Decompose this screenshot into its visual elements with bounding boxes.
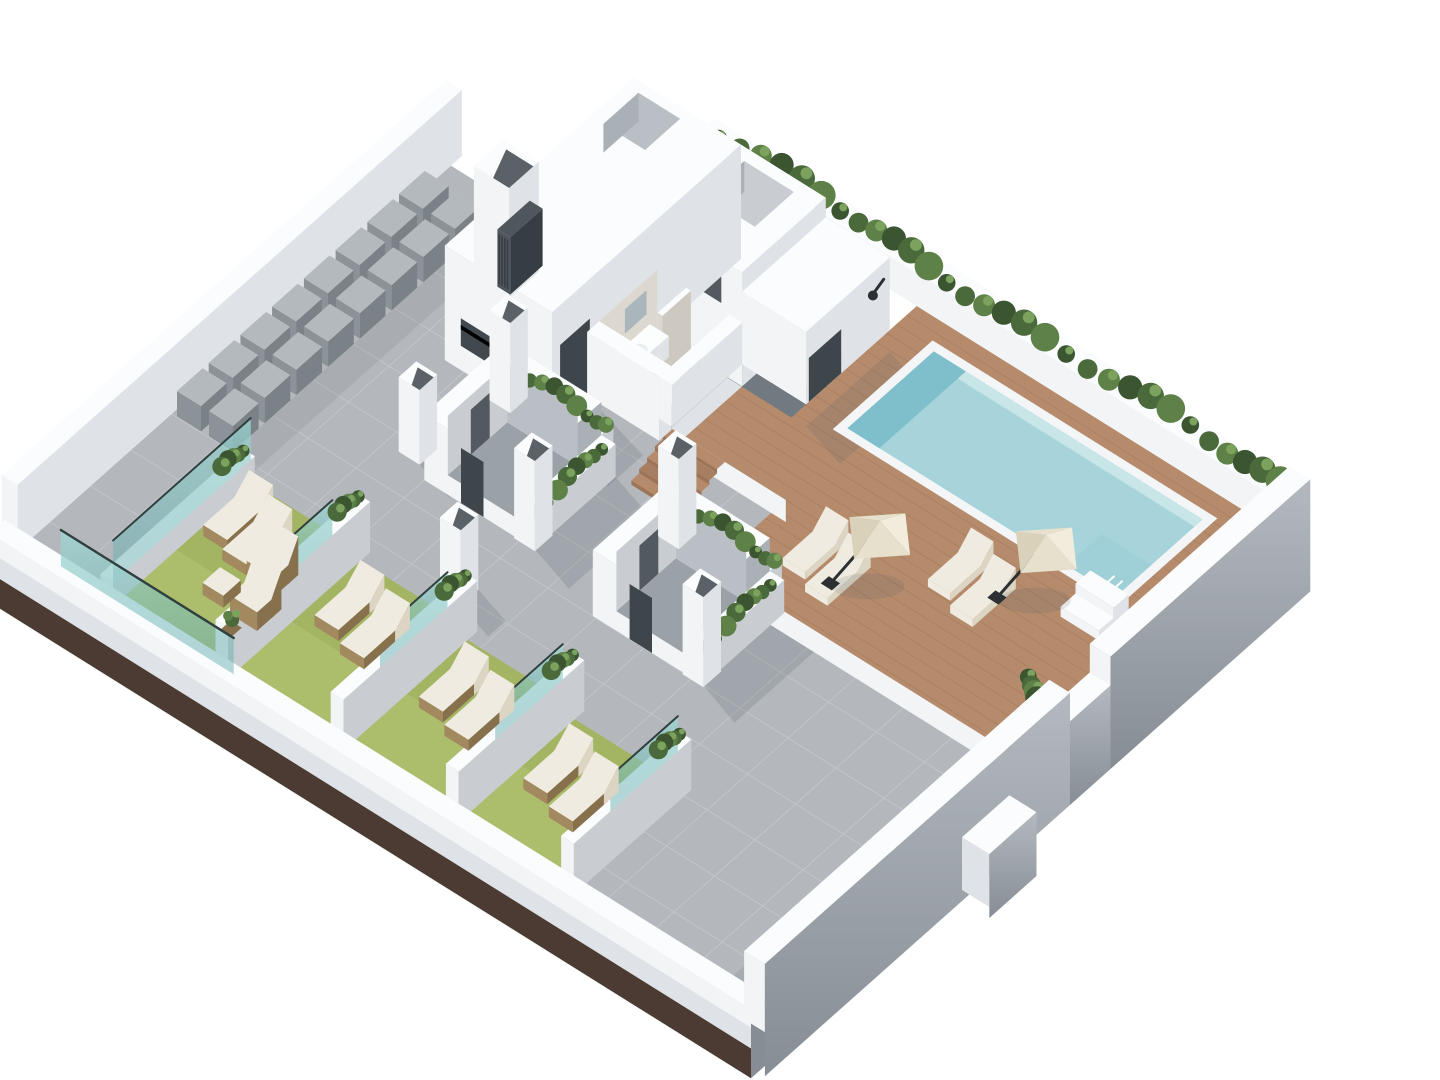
skylight-court-2-hedge-ne-foliage-light	[755, 547, 761, 553]
perimeter-hedge-foliage-light	[801, 167, 813, 179]
perimeter-hedge-foliage	[1057, 345, 1075, 363]
perimeter-hedge-foliage	[1157, 394, 1186, 423]
perimeter-hedge-foliage-light	[1149, 385, 1161, 397]
skylight-court-2-hedge-ne-foliage	[767, 553, 783, 569]
skylight-court-1-hedge-se-foliage-light	[585, 454, 592, 461]
lawn-wall-0-hedge-foliage-light	[221, 458, 230, 467]
skylight-court-2-hedge-se-foliage-light	[753, 590, 760, 597]
skylight-court-1-pillar-b-se-face	[535, 445, 553, 551]
skylight-court-1-hedge-ne-foliage-light	[605, 418, 612, 425]
perimeter-hedge-foliage	[915, 252, 944, 281]
lawn-wall-3-hedge-foliage	[542, 661, 561, 680]
skylight-court-2-pillar-b-se-face	[703, 581, 721, 687]
lawn-wall-0-hedge-foliage	[212, 457, 231, 476]
skylight-court-2-pillar-a-se-face	[679, 443, 697, 549]
skylight-court-1-pillar-b-sw-face	[514, 448, 535, 551]
lawn-wall-4-hedge-foliage-light	[657, 742, 666, 751]
skylight-court-2-hedge-se-foliage-light	[770, 580, 776, 586]
skylight-court-1-hedge-se-foliage-light	[601, 444, 607, 450]
parasol-1-shadow	[999, 588, 1071, 614]
perimeter-hedge-foliage-light	[1065, 347, 1073, 355]
parapet-east-2-sw-face	[744, 951, 765, 1032]
perimeter-hedge-foliage	[1098, 369, 1120, 391]
skylight-court-1-hedge-ne-foliage	[598, 417, 614, 433]
skylight-court-2-pillar-a-sw-face	[658, 446, 679, 549]
skylight-court-1-pillar-a-sw-face	[490, 310, 511, 413]
terrace-pillar-1-se-face	[420, 374, 438, 464]
perimeter-hedge-foliage-light	[910, 239, 922, 251]
skylight-court-2-hedge-ne-foliage-light	[774, 554, 781, 561]
perimeter-hedge-foliage	[1182, 416, 1200, 434]
perimeter-hedge-foliage-light	[1023, 312, 1035, 324]
perimeter-hedge-foliage-light	[983, 296, 993, 306]
skylight-court-1-pillar-a-se-face	[510, 307, 528, 413]
perimeter-hedge-foliage-light	[875, 221, 885, 231]
skylight-court-2-pillar-b-sw-face	[683, 584, 704, 687]
parasol-2-shadow	[832, 573, 904, 599]
perimeter-hedge-foliage	[1199, 431, 1219, 451]
lawn-wall-3-hedge-foliage-light	[550, 662, 559, 671]
perimeter-hedge-foliage-light	[839, 203, 847, 211]
perimeter-hedge-foliage-light	[1189, 418, 1197, 426]
plant-foliage	[223, 611, 233, 621]
perimeter-hedge-foliage-light	[760, 146, 770, 156]
lawn-wall-1-hedge-foliage	[328, 502, 347, 521]
lawn-wall-1-hedge-foliage-light	[336, 504, 345, 513]
skylight-court-2-hedge-ne-foliage-light	[733, 522, 742, 531]
lawn-wall-2-hedge-foliage	[435, 582, 454, 601]
skylight-court-1-hedge-se-foliage-light	[567, 468, 576, 477]
rooftop-terrace-render: Rooftop terrace 3D axonometric floor-pla…	[0, 0, 1440, 1080]
lawn-wall-4-hedge-foliage	[649, 740, 668, 759]
terrace-pillar-1-sw-face	[399, 377, 420, 465]
bath-side-wall-sw-face	[659, 377, 672, 427]
skylight-court-1-hedge-ne-foliage-light	[586, 411, 592, 417]
lawn-wall-2-hedge-foliage-light	[443, 583, 452, 592]
scene-svg	[0, 0, 1440, 1080]
skylight-court-1-hedge-ne-foliage-light	[565, 386, 574, 395]
perimeter-hedge-foliage	[1078, 359, 1098, 379]
perimeter-hedge-foliage	[955, 286, 975, 306]
perimeter-hedge-foliage-light	[1261, 459, 1273, 471]
shower-head	[868, 291, 878, 301]
perimeter-hedge-foliage-light	[1226, 444, 1236, 454]
perimeter-hedge-foliage	[1031, 323, 1060, 352]
plant-foliage	[232, 610, 240, 618]
skylight-court-2-hedge-se-foliage-light	[735, 604, 744, 613]
perimeter-hedge-foliage-light	[1108, 370, 1118, 380]
perimeter-hedge-foliage-light	[946, 275, 954, 283]
